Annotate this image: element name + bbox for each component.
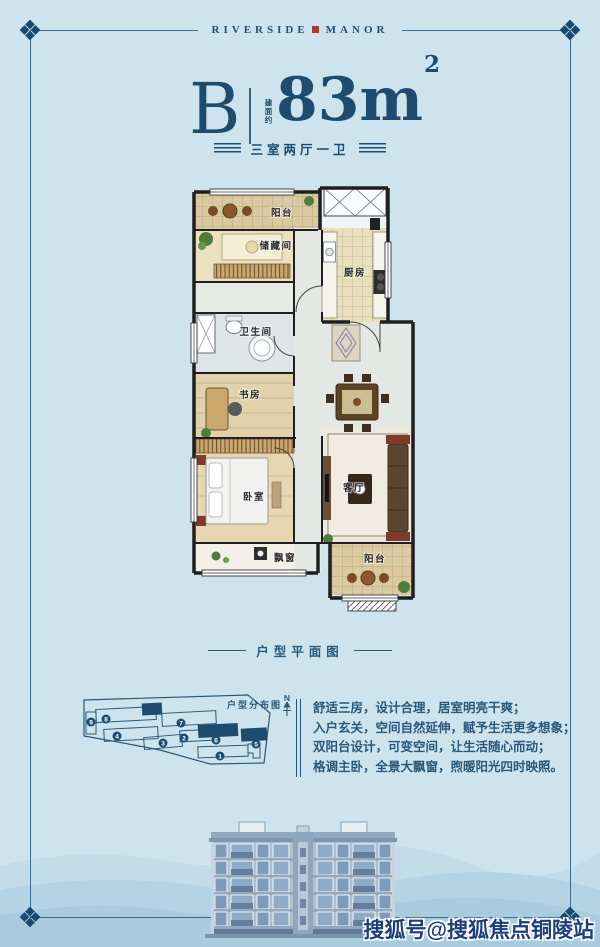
building-number: 2 — [182, 735, 186, 742]
description-line: 入户玄关，空间自然延伸，赋予生活更多想象； — [313, 719, 576, 739]
building-number: 8 — [104, 716, 108, 723]
description-block: 舒适三房，设计合理，居室明亮干爽； 入户玄关，空间自然延伸，赋予生活更多想象； … — [296, 699, 576, 777]
room-label-storage: 储藏间 — [259, 240, 292, 252]
description-line: 格调主卧，全景大飘窗，煦暖阳光四时映照。 — [313, 758, 576, 778]
area-value: 83m — [276, 65, 423, 135]
building-number: 1 — [218, 753, 222, 760]
room-label-bay-window: 飘窗 — [273, 552, 296, 564]
brand-name-right: MANOR — [326, 22, 389, 38]
corner-diamond-icon — [19, 906, 41, 928]
caption-line — [208, 650, 246, 652]
brand-header: RIVERSIDE MANOR — [0, 22, 600, 38]
floor-plan-caption: 户型平面图 — [256, 641, 344, 660]
room-label-balcony-bottom: 阳台 — [364, 553, 386, 565]
area-superscript: 2 — [424, 51, 440, 78]
room-label-balcony-top: 阳台 — [271, 207, 293, 219]
room-label-study: 书房 — [239, 389, 261, 401]
unit-type-letter: B — [189, 74, 240, 144]
compass-n-label: N — [281, 694, 293, 702]
triple-line-decoration — [359, 143, 386, 155]
building-number: 3 — [161, 740, 165, 747]
entry-rug — [332, 325, 360, 361]
room-label-kitchen: 厨房 — [344, 267, 366, 279]
floor-plan: 阳台 储藏间 厨房 卫生间 书房 卧室 飘窗 客厅 阳台 — [182, 186, 422, 614]
watermark: 搜狐号@搜狐焦点铜陵站 — [364, 914, 594, 944]
unit-area: 83m2 — [276, 70, 439, 130]
unit-layout-row: 三室两厅一卫 — [0, 139, 600, 158]
building-number: 5 — [254, 741, 258, 748]
room-label-living: 客厅 — [342, 482, 365, 494]
description-line: 舒适三房，设计合理，居室明亮干爽； — [313, 699, 576, 719]
area-prefix-label: 建面约 — [263, 99, 274, 125]
brand-name-left: RIVERSIDE — [212, 22, 309, 38]
living-room-furniture — [323, 434, 410, 544]
title-divider — [249, 88, 251, 144]
room-label-bedroom: 卧室 — [243, 491, 265, 503]
building-number: 4 — [115, 733, 119, 740]
site-plan-label: 户型分布图 — [227, 698, 282, 711]
room-label-bathroom: 卫生间 — [239, 326, 272, 338]
caption-line — [354, 650, 392, 652]
building-number: 7 — [179, 720, 183, 727]
brand-square-icon — [312, 26, 319, 33]
description-line: 双阳台设计，可变空间，让生活随心而动； — [313, 738, 576, 758]
unit-layout-label: 三室两厅一卫 — [250, 139, 349, 158]
poster-page: RIVERSIDE MANOR B 建面约 83m2 三室两厅一卫 — [0, 0, 600, 947]
triple-line-decoration — [214, 143, 241, 155]
compass: N — [281, 694, 293, 717]
building-number: 9 — [89, 719, 93, 726]
floor-plan-caption-row: 户型平面图 — [0, 641, 600, 660]
building-number: 6 — [214, 737, 218, 744]
compass-arrow-icon — [282, 702, 292, 716]
description-accent-bar — [296, 699, 301, 777]
